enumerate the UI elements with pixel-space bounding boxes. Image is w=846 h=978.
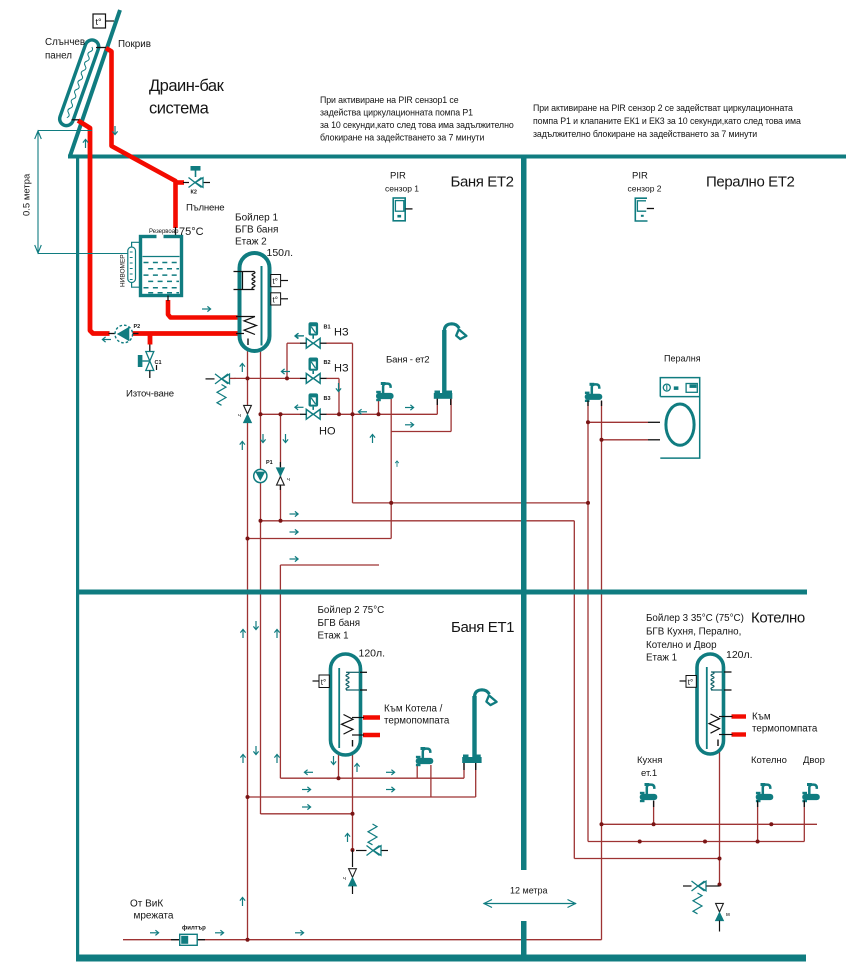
- svg-text:Бойлер 3 35°C (75°C): Бойлер 3 35°C (75°C): [646, 613, 744, 624]
- svg-text:t°: t°: [96, 17, 103, 27]
- svg-text:система: система: [149, 100, 210, 118]
- svg-text:Към: Към: [752, 712, 771, 723]
- svg-text:Драин-бак: Драин-бак: [149, 77, 225, 95]
- svg-text:помпа P1 и клапаните ЕК1 и ЕК3: помпа P1 и клапаните ЕК1 и ЕК3 за 10 сек…: [533, 116, 801, 126]
- svg-text:НЗ: НЗ: [334, 327, 349, 339]
- svg-text:t°: t°: [273, 277, 278, 286]
- svg-text:t°: t°: [688, 678, 693, 687]
- svg-text:t°: t°: [321, 678, 326, 687]
- svg-text:P1: P1: [266, 460, 273, 466]
- svg-text:м: м: [726, 912, 730, 918]
- svg-text:БГВ баня: БГВ баня: [235, 224, 278, 236]
- svg-text:Към Котела /: Към Котела /: [384, 704, 443, 715]
- svg-text:НЗ: НЗ: [334, 363, 349, 375]
- svg-text:термопомпата: термопомпата: [752, 724, 818, 735]
- svg-text:сензор 2: сензор 2: [628, 184, 662, 194]
- svg-text:сензор 1: сензор 1: [385, 184, 419, 194]
- svg-text:PIR: PIR: [390, 171, 406, 182]
- svg-text:Баня ЕТ1: Баня ЕТ1: [451, 619, 514, 636]
- svg-text:НИВОМЕР: НИВОМЕР: [120, 254, 127, 287]
- svg-text:ет.1: ет.1: [641, 768, 657, 779]
- svg-text:Бойлер 2 75°C: Бойлер 2 75°C: [318, 605, 385, 616]
- svg-text:Слънчев: Слънчев: [45, 37, 85, 48]
- svg-text:БГВ Кухня, Перално,: БГВ Кухня, Перално,: [646, 627, 741, 638]
- svg-text:P2: P2: [134, 324, 141, 330]
- svg-text:0.5 метра: 0.5 метра: [22, 173, 33, 216]
- svg-text:t°: t°: [273, 295, 278, 304]
- svg-text:75°C: 75°C: [179, 226, 204, 238]
- svg-text:Кухня: Кухня: [637, 755, 662, 766]
- svg-text:НО: НО: [319, 426, 336, 438]
- svg-text:Етаж 1: Етаж 1: [646, 653, 677, 664]
- svg-text:В2: В2: [324, 360, 331, 366]
- svg-text:Покрив: Покрив: [118, 39, 151, 50]
- svg-text:Пералня: Пералня: [664, 354, 701, 364]
- svg-text:ч: ч: [238, 413, 241, 419]
- svg-text:за 10 секунди,като след това и: за 10 секунди,като след това има задължи…: [320, 120, 514, 130]
- svg-text:При активиране на PIR сензор 2: При активиране на PIR сензор 2 се задейс…: [533, 103, 793, 113]
- svg-text:Баня ЕТ2: Баня ЕТ2: [451, 174, 514, 191]
- svg-text:термопомпата: термопомпата: [384, 716, 450, 727]
- svg-text:При активиране на PIR сензор1: При активиране на PIR сензор1 се: [320, 95, 459, 105]
- svg-text:Етаж 2: Етаж 2: [235, 237, 267, 248]
- svg-text:PIR: PIR: [632, 171, 648, 182]
- svg-text:От ВиК: От ВиК: [130, 899, 163, 910]
- svg-text:ч: ч: [343, 876, 346, 882]
- svg-text:ч: ч: [287, 477, 290, 483]
- svg-text:филтър: филтър: [182, 925, 206, 932]
- svg-text:панел: панел: [45, 51, 72, 62]
- svg-text:Баня - ет2: Баня - ет2: [386, 355, 429, 366]
- svg-text:блокиране на задействането за: блокиране на задействането за 7 минути: [320, 133, 484, 143]
- svg-text:C1: C1: [155, 360, 162, 366]
- svg-text:Етаж 1: Етаж 1: [318, 631, 349, 642]
- svg-text:задейства циркулационната помп: задейства циркулационната помпа P1: [320, 108, 473, 118]
- svg-text:Перално ЕТ2: Перално ЕТ2: [706, 174, 795, 191]
- svg-text:Котелно: Котелно: [751, 610, 805, 627]
- svg-text:Котелно и Двор: Котелно и Двор: [646, 640, 717, 651]
- svg-text:БГВ баня: БГВ баня: [318, 618, 361, 629]
- svg-text:задължително блокиране на заде: задължително блокиране на задействането …: [533, 129, 757, 139]
- svg-text:В3: В3: [324, 396, 331, 402]
- svg-text:Източ-ване: Източ-ване: [126, 389, 174, 400]
- svg-text:Бойлер 1: Бойлер 1: [235, 213, 278, 224]
- svg-text:мрежата: мрежата: [134, 911, 174, 922]
- svg-text:120л.: 120л.: [726, 649, 753, 661]
- svg-text:В1: В1: [324, 325, 331, 331]
- svg-text:120л.: 120л.: [359, 648, 386, 660]
- svg-text:Резервоар: Резервоар: [149, 229, 179, 235]
- svg-text:12 метра: 12 метра: [510, 886, 548, 896]
- svg-text:Двор: Двор: [803, 755, 825, 766]
- svg-text:Котелно: Котелно: [751, 755, 787, 766]
- svg-text:К2: К2: [191, 190, 197, 196]
- svg-text:150л.: 150л.: [267, 247, 294, 259]
- svg-text:Пълнене: Пълнене: [186, 203, 224, 214]
